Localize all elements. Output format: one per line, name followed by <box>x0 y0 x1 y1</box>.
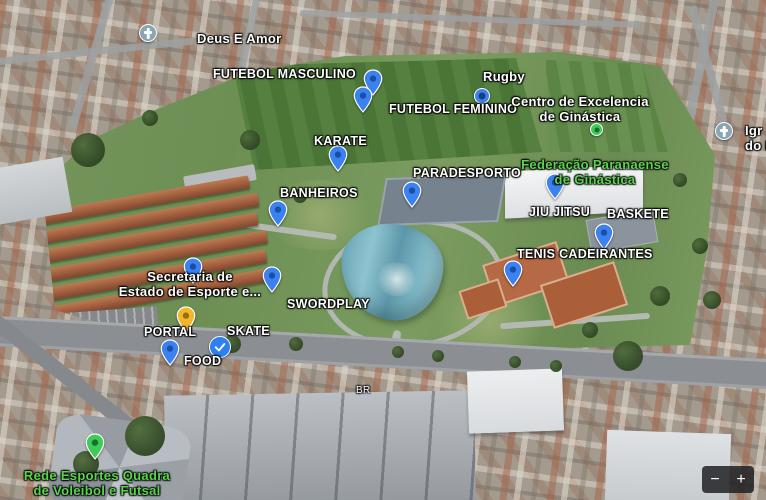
check-icon <box>214 341 227 354</box>
map-pin-swordplay[interactable] <box>262 266 282 293</box>
map-pin-centro-excelencia[interactable] <box>590 123 603 136</box>
tree <box>613 341 643 371</box>
tree <box>142 110 158 126</box>
map-pin-paradesporto[interactable] <box>402 181 422 208</box>
map-label-portal[interactable]: PORTAL <box>144 325 196 340</box>
tree <box>432 350 444 362</box>
map-pin-karate[interactable] <box>328 145 348 172</box>
tree <box>289 337 303 351</box>
building-white-block <box>467 368 564 433</box>
pin-dot <box>479 93 486 100</box>
tree <box>550 360 562 372</box>
map-label-karate[interactable]: KARATE <box>314 134 367 149</box>
label-line: Federação Paranaense <box>521 157 669 172</box>
terrain-sport-court <box>377 174 506 226</box>
map-label-federacao-ginastica[interactable]: Federação Paranaense de Ginástica <box>521 157 669 187</box>
church-pin-igreja[interactable] <box>715 122 733 140</box>
cross-icon <box>147 28 150 39</box>
label-line: Estado de Esporte e... <box>119 284 261 299</box>
map-label-igreja[interactable]: Igr do B <box>745 123 766 153</box>
zoom-controls: − + <box>702 466 754 493</box>
zoom-out-button[interactable]: − <box>702 466 728 493</box>
tree <box>509 356 521 368</box>
tree <box>125 416 165 456</box>
tree <box>692 238 708 254</box>
map-label-baskete[interactable]: BASKETE <box>607 207 669 222</box>
map-pin-tenis-cadeirantes[interactable] <box>503 260 523 287</box>
building-bottom-halls <box>164 390 476 500</box>
map-label-secretaria-esporte[interactable]: Secretaria de Estado de Esporte e... <box>119 269 261 299</box>
map-label-swordplay[interactable]: SWORDPLAY <box>287 297 370 312</box>
label-line: de Ginástica <box>511 109 649 124</box>
cross-icon <box>720 129 728 132</box>
tree <box>703 291 721 309</box>
label-line: Igr <box>745 123 766 138</box>
map-label-rugby[interactable]: Rugby <box>483 69 525 84</box>
tree <box>392 346 404 358</box>
map-label-jiu-jitsu[interactable]: JIU JITSU <box>529 205 590 220</box>
dome-highlight <box>374 261 420 297</box>
pin-dot <box>594 127 599 132</box>
map-label-rede-esportes[interactable]: Rede Esportes Quadra de Voleibol e Futsa… <box>24 468 170 498</box>
label-line: de Voleibol e Futsal <box>24 483 170 498</box>
map-label-tenis-cadeirantes[interactable]: TENIS CADEIRANTES <box>517 247 653 262</box>
label-line: Secretaria de <box>119 269 261 284</box>
google-earth-map-view[interactable]: Deus E Amor FUTEBOL MASCULINO Rugby FUTE… <box>0 0 766 500</box>
tree <box>650 286 670 306</box>
map-label-food[interactable]: FOOD <box>184 354 221 369</box>
label-line: Rede Esportes Quadra <box>24 468 170 483</box>
tree <box>673 173 687 187</box>
label-line: Centro de Excelencia <box>511 94 649 109</box>
map-pin-portal[interactable] <box>160 339 180 366</box>
map-pin-futebol-feminino[interactable] <box>353 86 373 113</box>
map-label-banheiros[interactable]: BANHEIROS <box>280 186 358 201</box>
map-pin-baskete[interactable] <box>594 223 614 250</box>
cross-icon <box>144 31 152 34</box>
tree <box>240 130 260 150</box>
map-label-deus-e-amor[interactable]: Deus E Amor <box>197 31 281 46</box>
map-label-futebol-masculino[interactable]: FUTEBOL MASCULINO <box>213 67 356 82</box>
map-label-paradesporto[interactable]: PARADESPORTO <box>413 166 521 181</box>
map-label-futebol-feminino[interactable]: FUTEBOL FEMININO <box>389 102 517 117</box>
map-label-road-br: BR <box>356 383 371 398</box>
map-label-skate[interactable]: SKATE <box>227 324 270 339</box>
map-pin-rede-esportes[interactable] <box>85 433 105 460</box>
tree <box>582 322 598 338</box>
zoom-in-button[interactable]: + <box>728 466 754 493</box>
map-pin-banheiros[interactable] <box>268 200 288 227</box>
label-line: do B <box>745 138 766 153</box>
label-line: de Ginástica <box>521 172 669 187</box>
tree <box>71 133 105 167</box>
church-pin-deus-e-amor[interactable] <box>139 24 157 42</box>
cross-icon <box>723 126 726 137</box>
map-label-centro-excelencia[interactable]: Centro de Excelencia de Ginástica <box>511 94 649 124</box>
